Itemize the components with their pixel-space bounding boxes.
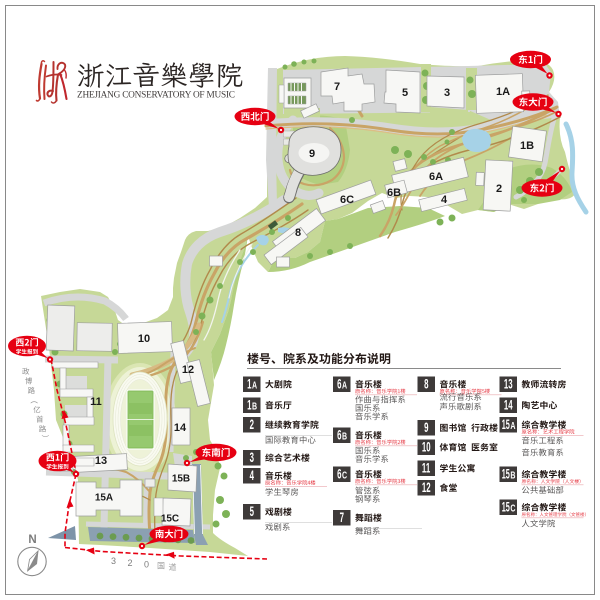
svg-text:C: C <box>510 502 515 513</box>
svg-text:6: 6 <box>337 428 341 443</box>
svg-text:N: N <box>28 534 36 546</box>
svg-text:5: 5 <box>250 505 254 520</box>
svg-text:15: 15 <box>502 500 510 515</box>
svg-text:1A: 1A <box>496 86 510 98</box>
svg-text:4: 4 <box>441 194 448 206</box>
svg-text:B: B <box>252 400 257 411</box>
svg-text:11: 11 <box>422 461 430 476</box>
svg-text:11: 11 <box>90 396 102 408</box>
svg-text:8: 8 <box>295 227 301 239</box>
svg-text:15: 15 <box>502 418 510 433</box>
svg-text:A: A <box>252 379 257 390</box>
svg-text:3: 3 <box>250 451 254 466</box>
svg-text:A: A <box>510 420 515 431</box>
svg-text:6B: 6B <box>387 187 401 199</box>
svg-text:13: 13 <box>95 455 107 467</box>
svg-text:7: 7 <box>334 81 340 93</box>
svg-text:6: 6 <box>337 467 341 482</box>
svg-text:10: 10 <box>422 440 431 455</box>
svg-text:8: 8 <box>424 377 428 392</box>
svg-text:6: 6 <box>337 377 341 392</box>
svg-text:0: 0 <box>144 560 149 570</box>
svg-text:9: 9 <box>424 421 428 436</box>
svg-text:A: A <box>342 379 347 390</box>
svg-text:B: B <box>510 469 515 480</box>
svg-text:7: 7 <box>340 511 344 526</box>
svg-text:12: 12 <box>182 364 194 376</box>
svg-text:4: 4 <box>250 469 255 484</box>
svg-text:3: 3 <box>444 87 450 99</box>
svg-text:15C: 15C <box>161 514 179 525</box>
svg-text:B: B <box>342 430 347 441</box>
svg-text:14: 14 <box>504 398 513 413</box>
svg-text:2: 2 <box>128 558 133 568</box>
svg-text:9: 9 <box>309 148 315 160</box>
svg-text:6A: 6A <box>429 171 443 183</box>
svg-text:3: 3 <box>111 556 116 566</box>
svg-text:14: 14 <box>174 422 187 434</box>
svg-text:5: 5 <box>402 87 408 99</box>
svg-text:15B: 15B <box>172 474 190 485</box>
svg-text:2: 2 <box>496 183 502 195</box>
svg-text:12: 12 <box>422 481 431 496</box>
svg-text:6C: 6C <box>340 194 354 206</box>
svg-text:1: 1 <box>247 398 251 413</box>
svg-text:15A: 15A <box>95 493 113 504</box>
svg-text:2: 2 <box>250 418 254 433</box>
svg-text:ZHEJIANG CONSERVATORY OF MUSIC: ZHEJIANG CONSERVATORY OF MUSIC <box>77 91 235 101</box>
svg-text:15: 15 <box>502 467 510 482</box>
svg-text:10: 10 <box>138 333 150 345</box>
svg-text:1: 1 <box>247 377 251 392</box>
svg-text:1B: 1B <box>520 140 534 152</box>
svg-text:C: C <box>342 469 347 480</box>
svg-text:13: 13 <box>504 377 513 392</box>
